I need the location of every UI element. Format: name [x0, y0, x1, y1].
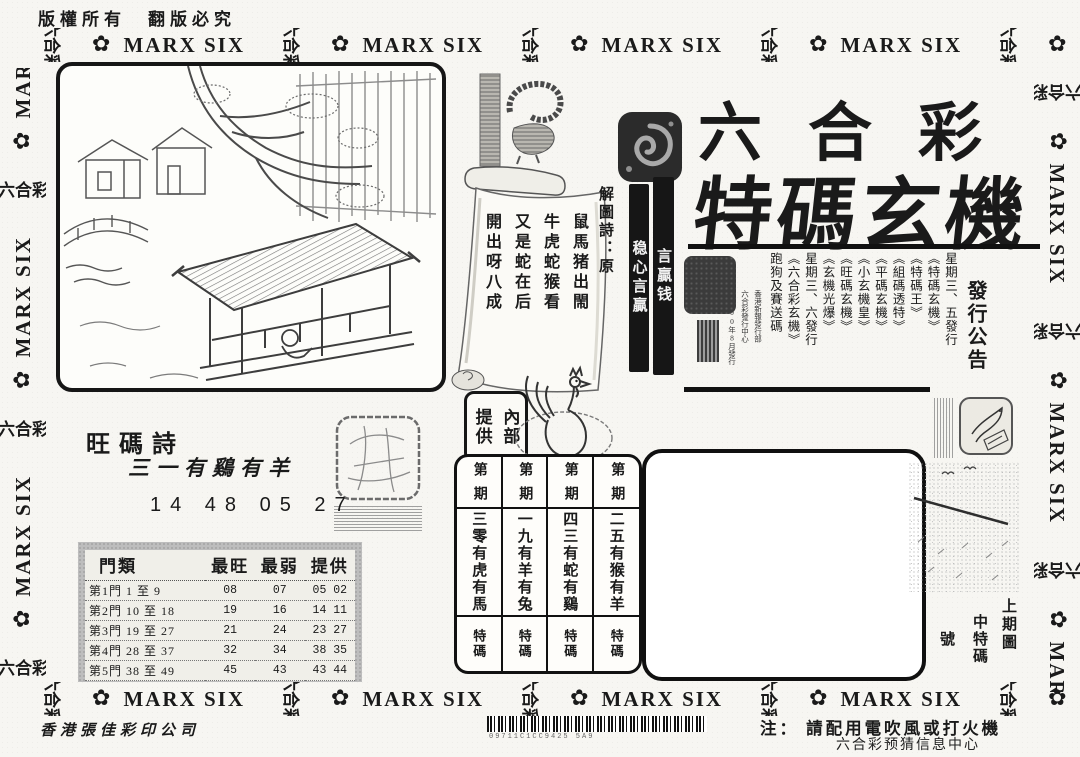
border-strip-left: 六合彩✿MARX SIX六合彩✿MARX SIX六合彩✿MARX SIX — [0, 68, 46, 692]
marx-six-label: MARX SIX — [841, 687, 963, 712]
flower-icon: ✿ — [12, 132, 34, 150]
marx-six-label: MARX SIX — [1045, 642, 1070, 693]
border-cjk-label: 六合彩 — [519, 682, 544, 716]
village-illustration — [56, 62, 446, 392]
marx-six-label: MARX SIX — [362, 687, 484, 712]
marx-six-label: MARX SIX — [1045, 402, 1070, 524]
stats-value-cell: 19 — [205, 601, 255, 621]
period-phrase-cell: 三零有虎有馬 — [457, 509, 503, 617]
stats-header-cell: 門類 — [85, 550, 205, 581]
marx-six-label: MARX SIX — [11, 475, 36, 597]
info-center-name: 六合彩预猜信息中心 — [836, 734, 980, 754]
last-issue-caption: 上期圖 — [998, 598, 1019, 652]
stats-value-cell: 32 — [205, 641, 255, 661]
marx-six-label: MARX SIX — [123, 687, 245, 712]
border-cjk-label: 六合彩 — [1034, 81, 1080, 106]
border-unit: 六合彩✿MARX SIX — [745, 33, 962, 58]
supply-box-left-text: 提供 — [470, 408, 495, 446]
stats-value-cell: 43 — [255, 661, 305, 681]
flower-icon: ✿ — [92, 688, 110, 710]
border-unit: 六合彩✿MARX SIX — [1045, 546, 1070, 692]
border-cjk-label: 六合彩 — [758, 682, 783, 716]
border-cjk-label: 六合彩 — [1034, 320, 1080, 345]
marx-six-label: MARX SIX — [11, 236, 36, 358]
period-tag-cell: 特碼 — [594, 617, 640, 671]
stats-category-cell: 第4門 28 至 37 — [85, 641, 205, 661]
stats-value-cell: 08 — [205, 581, 255, 601]
border-cjk-label: 六合彩 — [0, 176, 46, 201]
announcement-heading: 發行公告 — [961, 252, 990, 372]
border-unit: 六合彩✿MARX SIX — [506, 33, 723, 58]
border-cjk-label: 六合彩 — [280, 682, 305, 716]
announcement-item: 《玄機光爆》 — [821, 252, 834, 333]
announcement-item: 《特碼玄機》 — [926, 252, 939, 333]
lucky-code-poem-verse: 三一有鷄有羊 — [128, 452, 296, 482]
publisher-small-stamp — [697, 320, 719, 362]
barcode — [487, 716, 707, 732]
period-header-top: 第 — [606, 462, 626, 476]
border-unit: 六合彩✿MARX SIX — [11, 475, 36, 692]
period-phrase: 三零有虎有馬 — [468, 511, 489, 613]
flower-icon: ✿ — [809, 688, 827, 710]
border-strip-right: 六合彩✿MARX SIX六合彩✿MARX SIX六合彩✿MARX SIX — [1034, 68, 1080, 692]
border-unit: 六合彩✿MARX SIX — [984, 33, 1080, 58]
border-unit: 六合彩✿MARX SIX — [506, 687, 723, 712]
period-tag-cell: 特碼 — [457, 617, 503, 671]
announcement-item: 《特碼王》 — [909, 252, 922, 320]
lucky-code-numbers: 14 48 05 27 — [150, 494, 355, 517]
announcement-item: 《組碼透特》 — [891, 252, 904, 333]
stats-header-row: 門類最旺最弱提供 — [85, 550, 355, 581]
publisher-line: 六合彩發行中心 — [740, 290, 751, 365]
stats-table-head: 門類最旺最弱提供 — [85, 550, 355, 581]
stats-value-cell: 45 — [205, 661, 255, 681]
barcode-text: 09711C1CC9425 5A9 — [489, 733, 594, 741]
last-issue-landscape-picture — [908, 462, 1020, 592]
marx-six-label: MARX SIX — [11, 68, 36, 119]
border-unit: 六合彩✿MARX SIX — [11, 236, 36, 453]
border-cjk-label: 六合彩 — [0, 654, 46, 679]
slogan-bar-left: 稳心言贏 — [629, 184, 649, 372]
period-header-cell: 第期 — [503, 457, 549, 509]
marx-six-label: MARX SIX — [1045, 163, 1070, 285]
stats-row: 第2門 10 至 18191614 11 — [85, 601, 355, 621]
stats-value-cell: 05 02 — [305, 581, 355, 601]
slogan-bar-right-text: 言贏钱 — [653, 248, 674, 305]
marx-six-label: MARX SIX — [602, 687, 724, 712]
border-cjk-label: 六合彩 — [519, 28, 544, 62]
border-strip-bottom: 六合彩✿MARX SIX六合彩✿MARX SIX六合彩✿MARX SIX六合彩✿… — [28, 682, 1080, 716]
flower-icon: ✿ — [570, 34, 588, 56]
stats-row: 第1門 1 至 9080705 02 — [85, 581, 355, 601]
stats-value-cell: 14 11 — [305, 601, 355, 621]
stats-category-cell: 第3門 19 至 27 — [85, 621, 205, 641]
period-phrase-cell: 二五有猴有羊 — [594, 509, 640, 617]
flower-icon: ✿ — [1048, 34, 1066, 56]
slogan-bar-right: 言贏钱 — [653, 177, 674, 375]
flower-icon: ✿ — [809, 34, 827, 56]
period-prediction-table: 第期第期第期第期三零有虎有馬一九有羊有兔四三有蛇有鷄二五有猴有羊特碼特碼特碼特碼 — [454, 454, 642, 674]
slogan-bar-left-text: 稳心言贏 — [629, 240, 650, 316]
special-code-label: 特碼 — [560, 629, 579, 659]
flower-icon: ✿ — [92, 34, 110, 56]
announcement-item: 《小玄機皇》 — [856, 252, 869, 333]
lottery-flyer-sheet: 版權所有 翻版必究 六合彩✿MARX SIX六合彩✿MARX SIX六合彩✿MA… — [0, 0, 1080, 757]
announcement-item: 《旺碼玄機》 — [839, 252, 852, 333]
stats-value-cell: 16 — [255, 601, 305, 621]
period-header-bottom: 期 — [560, 486, 580, 500]
border-unit: 六合彩✿MARX SIX — [1045, 68, 1070, 285]
flower-icon: ✿ — [1046, 610, 1068, 628]
border-cjk-label: 六合彩 — [997, 682, 1022, 716]
fine-print-column — [934, 398, 954, 458]
border-unit: 六合彩✿MARX SIX — [1045, 307, 1070, 524]
period-header-top: 第 — [560, 462, 580, 476]
period-header-top: 第 — [469, 462, 489, 476]
flower-icon: ✿ — [12, 610, 34, 628]
announcement-underline — [684, 387, 930, 392]
stats-row: 第3門 19 至 27212423 27 — [85, 621, 355, 641]
border-cjk-label: 六合彩 — [758, 28, 783, 62]
stats-table: 門類最旺最弱提供第1門 1 至 9080705 02第2門 10 至 18191… — [85, 550, 355, 681]
copyright-notice: 版權所有 翻版必究 — [38, 5, 236, 30]
announcement-item: 《六合彩玄機》 — [786, 252, 799, 347]
stats-value-cell: 21 — [205, 621, 255, 641]
border-unit: 六合彩✿MARX SIX — [28, 687, 245, 712]
period-header-cell: 第期 — [457, 457, 503, 509]
border-cjk-label: 六合彩 — [0, 415, 46, 440]
landscape-drawing — [908, 462, 1020, 592]
special-code-label: 特碼 — [607, 629, 626, 659]
border-unit: 六合彩✿MARX SIX — [745, 687, 962, 712]
border-unit: 六合彩✿MARX SIX — [267, 687, 484, 712]
empty-result-box — [642, 449, 926, 681]
special-code-label: 特碼 — [469, 629, 488, 659]
border-strip-top: 六合彩✿MARX SIX六合彩✿MARX SIX六合彩✿MARX SIX六合彩✿… — [28, 28, 1080, 62]
publisher-line: 香港新報發行部 — [753, 290, 764, 365]
stats-value-cell: 23 27 — [305, 621, 355, 641]
period-tag-cell: 特碼 — [503, 617, 549, 671]
period-tag-cell: 特碼 — [548, 617, 594, 671]
flower-icon: ✿ — [331, 688, 349, 710]
poem-line: 開出呀八成 — [479, 213, 503, 398]
stats-row: 第5門 38 至 49454343 44 — [85, 661, 355, 681]
flower-icon: ✿ — [1046, 371, 1068, 389]
flower-icon: ✿ — [12, 371, 34, 389]
flower-icon: ✿ — [331, 34, 349, 56]
stats-panel: 門類最旺最弱提供第1門 1 至 9080705 02第2門 10 至 18191… — [78, 542, 362, 682]
village-sketch-drawing — [60, 66, 442, 388]
period-phrase-cell: 一九有羊有兔 — [503, 509, 549, 617]
period-header-cell: 第期 — [594, 457, 640, 509]
announcement-item: 星期三、五發行 — [944, 252, 957, 347]
marx-six-label: MARX SIX — [602, 33, 724, 58]
result-prefix-text: 中特碼 — [969, 614, 990, 665]
period-phrase: 二五有猴有羊 — [606, 511, 627, 613]
border-cjk-label: 六合彩 — [997, 28, 1022, 62]
border-cjk-label: 六合彩 — [41, 28, 66, 62]
stats-header-cell: 最旺 — [205, 550, 255, 581]
period-header-bottom: 期 — [469, 486, 489, 500]
square-seal-drawing — [334, 414, 422, 502]
stats-value-cell: 24 — [255, 621, 305, 641]
special-code-label: 特碼 — [515, 629, 534, 659]
period-phrase-cell: 四三有蛇有鷄 — [548, 509, 594, 617]
stats-category-cell: 第2門 10 至 18 — [85, 601, 205, 621]
bird-seal-stamp — [958, 396, 1014, 458]
stats-value-cell: 38 35 — [305, 641, 355, 661]
period-phrase: 一九有羊有兔 — [514, 511, 535, 613]
stats-header-cell: 最弱 — [255, 550, 305, 581]
bird-seal-drawing — [958, 396, 1014, 458]
period-header-bottom: 期 — [606, 486, 626, 500]
period-header-cell: 第期 — [548, 457, 594, 509]
border-cjk-label: 六合彩 — [1034, 559, 1080, 584]
publisher-seal-stamp — [684, 256, 736, 314]
stats-value-cell: 07 — [255, 581, 305, 601]
title-underline — [688, 244, 1040, 249]
border-cjk-label: 六合彩 — [280, 28, 305, 62]
result-suffix-text: 號 — [936, 631, 957, 648]
stats-table-body: 第1門 1 至 9080705 02第2門 10 至 18191614 11第3… — [85, 581, 355, 681]
square-seal-stamp — [334, 414, 422, 502]
winning-special-number-label: 中特碼 號 — [936, 594, 990, 684]
printer-name: 香港張佳彩印公司 — [40, 719, 200, 740]
announcement-item: 《平碼玄機》 — [874, 252, 887, 333]
flower-icon: ✿ — [570, 688, 588, 710]
stats-value-cell: 43 44 — [305, 661, 355, 681]
announcement-item: 跑狗及賽送碼 — [769, 252, 782, 333]
stats-category-cell: 第5門 38 至 49 — [85, 661, 205, 681]
marx-six-label: MARX SIX — [841, 33, 963, 58]
period-header-top: 第 — [514, 462, 534, 476]
flower-icon: ✿ — [1046, 132, 1068, 150]
stats-category-cell: 第1門 1 至 9 — [85, 581, 205, 601]
stats-row: 第4門 28 至 37323438 35 — [85, 641, 355, 661]
period-header-bottom: 期 — [514, 486, 534, 500]
border-unit: 六合彩✿MARX SIX — [28, 33, 245, 58]
stats-value-cell: 34 — [255, 641, 305, 661]
period-phrase: 四三有蛇有鷄 — [559, 511, 580, 613]
border-unit: 六合彩✿MARX SIX — [267, 33, 484, 58]
border-unit: 六合彩✿MARX SIX — [11, 68, 36, 214]
marx-six-label: MARX SIX — [362, 33, 484, 58]
stats-header-cell: 提供 — [305, 550, 355, 581]
marx-six-label: MARX SIX — [123, 33, 245, 58]
announcement-item: 星期三、六發行 — [804, 252, 817, 347]
